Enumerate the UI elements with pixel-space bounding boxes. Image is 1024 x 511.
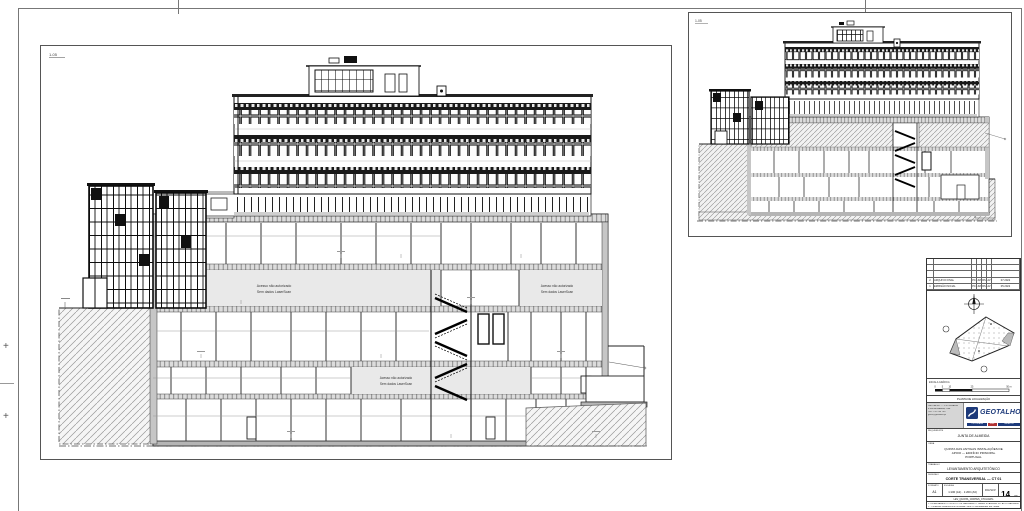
- terrain-right: [526, 403, 646, 446]
- secondary-view-tag: 1-05: [695, 19, 708, 24]
- location-caption-row: PLANTA DE LOCALIZAÇÃO: [927, 396, 1020, 403]
- title-block: 2ARQUIVO FINAL PCJM RSAV 07.2022 1EMISSÃ…: [926, 258, 1021, 509]
- setback-floor: [203, 194, 591, 216]
- scale-cell: ESCALAS 1:100 (A1) · 1:200 (A3): [943, 484, 983, 496]
- main-view-tag: 1-05: [49, 52, 65, 58]
- secondary-setback-floor: [785, 99, 979, 117]
- main-section-drawing: 1-05: [41, 46, 671, 459]
- office-tower: [232, 94, 593, 194]
- spec-row: TRABALHO LEVANTAMENTO ARQUITETÓNICO: [927, 463, 1020, 473]
- svg-text:5: 5: [942, 386, 944, 389]
- drawing-title-row: DESENHO CORTE TRANSVERSAL — CT 01: [927, 473, 1020, 484]
- fold-mark-1: [178, 0, 179, 14]
- svg-text:50 m: 50 m: [1006, 386, 1011, 389]
- sheet-suffix: DE: [1015, 495, 1018, 496]
- svg-text:ESCALA GRÁFICA: ESCALA GRÁFICA: [929, 381, 950, 384]
- company-address: GEOTALHO — TOPOGRAFIA E ENGENHARIA, LDA.…: [927, 403, 964, 428]
- registration-dash: [0, 383, 14, 384]
- secondary-section-drawing: 1-05: [689, 13, 1011, 236]
- roof-penthouse: [306, 56, 446, 96]
- secondary-elevator: [922, 152, 931, 170]
- terrain-left: [59, 298, 151, 444]
- svg-text:Sem dados LaserScan: Sem dados LaserScan: [380, 382, 412, 386]
- svg-text:Acesso não autorizado: Acesso não autorizado: [380, 376, 413, 380]
- sheet-canvas: + +: [0, 0, 1024, 511]
- svg-text:Acesso não autorizado: Acesso não autorizado: [541, 284, 574, 288]
- svg-text:10: 10: [948, 386, 951, 389]
- north-arrow-icon: [964, 294, 984, 314]
- svg-text:Acesso não autorizado: Acesso não autorizado: [257, 284, 292, 288]
- geotalho-logo-icon: [966, 407, 978, 419]
- secondary-office-tower: [783, 41, 981, 99]
- secondary-curtain-wall: [709, 89, 789, 144]
- svg-text:Sem dados LaserScan: Sem dados LaserScan: [257, 290, 291, 294]
- svg-text:1-05: 1-05: [695, 19, 702, 23]
- sheet-number: 14: [1001, 490, 1010, 496]
- main-section-viewport: 1-05: [40, 45, 672, 460]
- svg-text:25: 25: [971, 386, 974, 389]
- secondary-section-viewport: 1-05: [688, 12, 1012, 237]
- notes-row: 1. LEVANTAMENTO OBTIDO POR VARRIMENTO LA…: [927, 502, 1020, 510]
- sheet-label-cell: FOLHA Nº: [983, 484, 999, 496]
- company-name: GEOTALHO: [980, 409, 1020, 416]
- sheet-number-cell: 14 DE: [999, 484, 1020, 496]
- paper-frame-left: [18, 8, 19, 511]
- meta-row: FORMATO A1 ESCALAS 1:100 (A1) · 1:200 (A…: [927, 484, 1020, 497]
- client-row: REQUERENTE JUNTA DE ALMEIDA: [927, 429, 1020, 442]
- scale-bar: ESCALA GRÁFICA 0 5 10 25 50 m: [927, 379, 1020, 396]
- company-block: GEOTALHO — TOPOGRAFIA E ENGENHARIA, LDA.…: [927, 403, 1020, 429]
- paper-frame-right: [1021, 8, 1022, 511]
- no-access-zone-c: Acesso não autorizado Sem dados LaserSca…: [351, 367, 531, 394]
- no-access-zone-b: Acesso não autorizado Sem dados LaserSca…: [519, 270, 602, 306]
- registration-plus-1: +: [3, 342, 9, 352]
- svg-text:Sem dados LaserScan: Sem dados LaserScan: [541, 290, 573, 294]
- curtain-wall-left: [83, 183, 208, 308]
- revision-table: 2ARQUIVO FINAL PCJM RSAV 07.2022 1EMISSÃ…: [927, 259, 1020, 291]
- site-parcel: [943, 317, 1014, 372]
- format-cell: FORMATO A1: [927, 484, 943, 496]
- svg-text:0: 0: [934, 386, 936, 389]
- location-plan: [927, 291, 1020, 379]
- project-row: OBRA QUINTA DAS ANTIGAS INSTALAÇÕES DE A…: [927, 442, 1020, 463]
- paper-frame-top: [18, 8, 1021, 9]
- registration-plus-2: +: [3, 412, 9, 422]
- brand-strip: TOPOGRAFIA ENG. CADASTRO: [967, 423, 1020, 426]
- svg-text:1-05: 1-05: [49, 52, 58, 57]
